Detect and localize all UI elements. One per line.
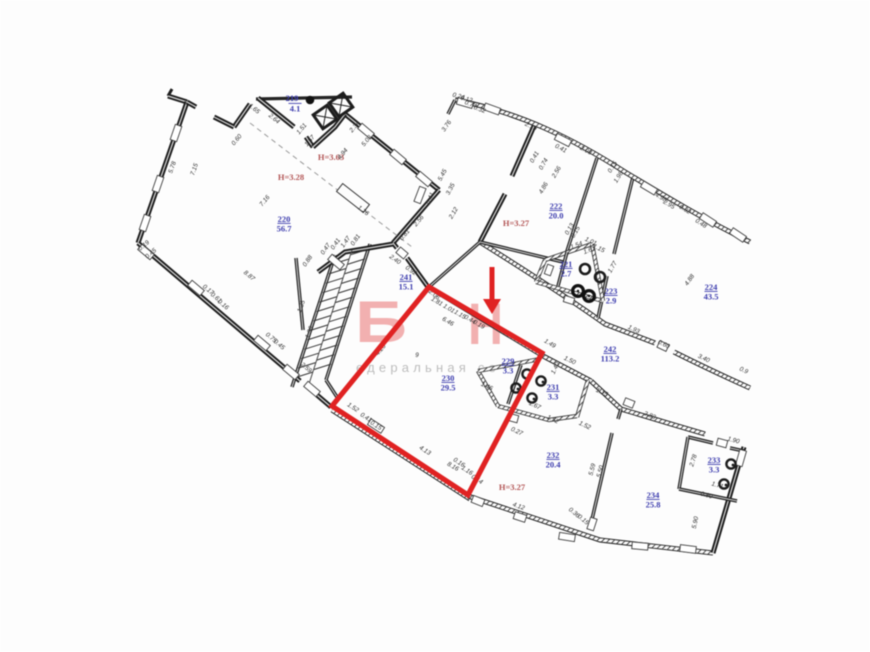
svg-text:242: 242: [604, 344, 617, 354]
svg-text:29.5: 29.5: [441, 383, 456, 393]
svg-text:113.2: 113.2: [601, 354, 620, 364]
svg-text:Н=3.28: Н=3.28: [278, 172, 304, 182]
svg-text:224: 224: [705, 282, 719, 292]
svg-text:Н=3.27: Н=3.27: [503, 218, 530, 228]
svg-text:15.1: 15.1: [399, 282, 414, 292]
svg-text:234: 234: [647, 490, 661, 500]
svg-text:56.7: 56.7: [277, 224, 293, 234]
svg-text:2.9: 2.9: [606, 296, 617, 306]
svg-text:230: 230: [442, 373, 455, 383]
svg-text:20.0: 20.0: [549, 211, 564, 221]
svg-text:219: 219: [286, 93, 299, 103]
svg-text:223: 223: [605, 286, 618, 296]
svg-text:222: 222: [550, 201, 563, 211]
svg-text:232: 232: [547, 450, 560, 460]
svg-text:3.3: 3.3: [503, 366, 514, 376]
svg-text:2.7: 2.7: [561, 269, 572, 279]
svg-text:231: 231: [547, 382, 560, 392]
svg-text:20.4: 20.4: [546, 460, 562, 470]
svg-text:3.3: 3.3: [548, 392, 559, 402]
svg-text:43.5: 43.5: [704, 292, 719, 302]
svg-text:4.1: 4.1: [290, 104, 301, 114]
svg-text:229: 229: [502, 356, 515, 366]
svg-text:25.8: 25.8: [646, 500, 661, 510]
svg-text:220: 220: [278, 214, 291, 224]
svg-text:221: 221: [560, 259, 573, 269]
svg-text:Н=3.27: Н=3.27: [499, 482, 526, 492]
svg-text:9: 9: [415, 352, 419, 359]
svg-text:3.3: 3.3: [709, 465, 720, 475]
svg-text:233: 233: [708, 455, 721, 465]
